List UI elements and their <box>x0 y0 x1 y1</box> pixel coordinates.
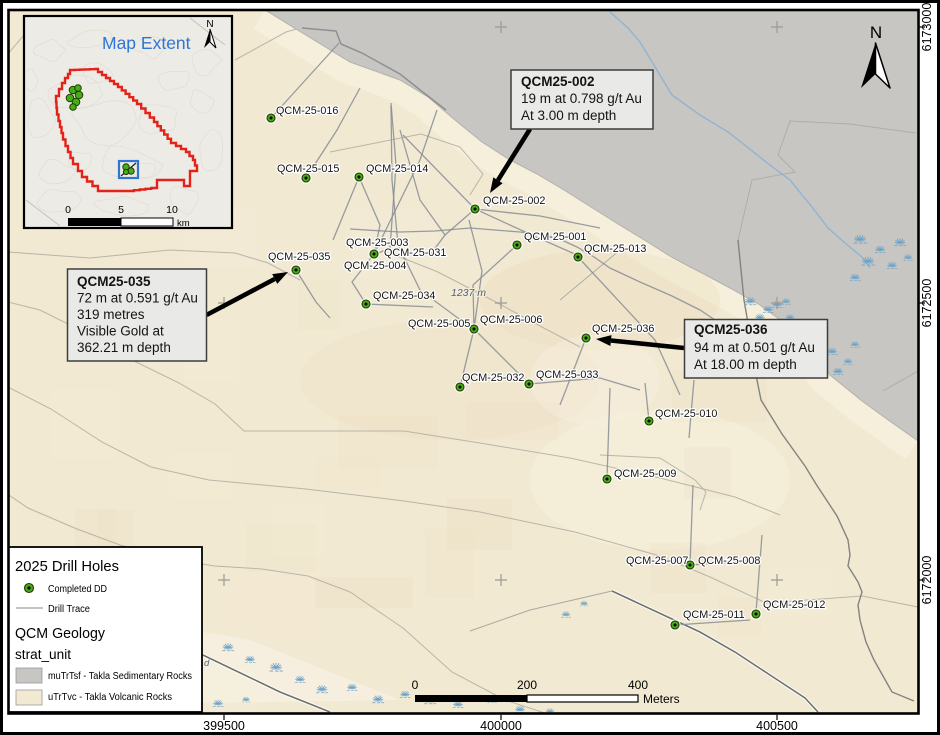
svg-text:319 metres: 319 metres <box>77 307 145 322</box>
svg-text:Visible Gold at: Visible Gold at <box>77 324 164 339</box>
svg-text:QCM-25-002: QCM-25-002 <box>483 195 545 207</box>
svg-text:6173000: 6173000 <box>920 3 934 52</box>
svg-text:QCM-25-004: QCM-25-004 <box>344 260 406 272</box>
svg-text:0: 0 <box>412 678 419 692</box>
svg-text:d: d <box>204 658 210 669</box>
svg-text:QCM-25-010: QCM-25-010 <box>655 408 717 420</box>
svg-text:Drill Trace: Drill Trace <box>48 604 90 615</box>
svg-text:QCM-25-006: QCM-25-006 <box>480 314 542 326</box>
svg-text:QCM-25-015: QCM-25-015 <box>277 163 339 175</box>
svg-text:Meters: Meters <box>643 692 680 706</box>
svg-text:QCM-25-012: QCM-25-012 <box>763 599 825 611</box>
svg-text:Map Extent: Map Extent <box>102 33 191 53</box>
svg-text:0: 0 <box>65 204 71 216</box>
svg-text:QCM-25-035: QCM-25-035 <box>268 251 330 263</box>
svg-text:QCM-25-016: QCM-25-016 <box>276 105 338 117</box>
svg-text:QCM-25-013: QCM-25-013 <box>584 243 646 255</box>
svg-text:QCM-25-014: QCM-25-014 <box>366 163 428 175</box>
svg-text:5: 5 <box>118 204 124 216</box>
svg-text:1237 m: 1237 m <box>451 287 486 299</box>
svg-text:19 m at 0.798 g/t Au: 19 m at 0.798 g/t Au <box>521 91 642 106</box>
svg-text:94 m at 0.501 g/t Au: 94 m at 0.501 g/t Au <box>694 340 815 355</box>
svg-text:At 3.00 m depth: At 3.00 m depth <box>521 108 616 123</box>
svg-text:QCM-25-001: QCM-25-001 <box>524 231 586 243</box>
svg-text:399500: 399500 <box>203 719 245 733</box>
svg-text:At 18.00 m depth: At 18.00 m depth <box>694 357 797 372</box>
svg-text:QCM-25-034: QCM-25-034 <box>373 290 435 302</box>
svg-text:uTrTvc - Takla Volcanic Rocks: uTrTvc - Takla Volcanic Rocks <box>48 692 172 703</box>
svg-text:strat_unit: strat_unit <box>15 647 71 662</box>
svg-text:400500: 400500 <box>756 719 798 733</box>
svg-text:N: N <box>870 23 882 42</box>
svg-text:QCM25-036: QCM25-036 <box>694 322 768 337</box>
svg-text:10: 10 <box>166 204 178 216</box>
svg-text:6172000: 6172000 <box>920 556 934 605</box>
svg-text:362.21 m depth: 362.21 m depth <box>77 340 171 355</box>
svg-text:QCM-25-036: QCM-25-036 <box>592 323 654 335</box>
svg-text:QCM Geology: QCM Geology <box>15 625 105 642</box>
svg-text:400: 400 <box>628 678 648 692</box>
svg-text:400000: 400000 <box>480 719 522 733</box>
svg-text:QCM-25-011: QCM-25-011 <box>683 609 745 621</box>
svg-text:muTrTsf - Takla Sedimentary Ro: muTrTsf - Takla Sedimentary Rocks <box>48 671 192 682</box>
svg-text:72 m at 0.591 g/t Au: 72 m at 0.591 g/t Au <box>77 291 198 306</box>
svg-text:QCM25-035: QCM25-035 <box>77 274 151 289</box>
svg-text:6172500: 6172500 <box>920 279 934 328</box>
svg-text:QCM-25-031: QCM-25-031 <box>384 247 446 259</box>
svg-text:QCM-25-005: QCM-25-005 <box>408 318 470 330</box>
svg-text:2025 Drill Holes: 2025 Drill Holes <box>15 558 119 575</box>
svg-text:N: N <box>206 19 213 30</box>
svg-text:QCM-25-008: QCM-25-008 <box>698 555 760 567</box>
svg-text:200: 200 <box>517 678 537 692</box>
svg-text:QCM-25-007: QCM-25-007 <box>626 555 688 567</box>
svg-text:Completed DD: Completed DD <box>48 584 107 595</box>
svg-text:QCM-25-032: QCM-25-032 <box>462 372 524 384</box>
svg-text:QCM-25-033: QCM-25-033 <box>536 369 598 381</box>
svg-text:QCM25-002: QCM25-002 <box>521 74 595 89</box>
svg-text:QCM-25-009: QCM-25-009 <box>614 468 676 480</box>
